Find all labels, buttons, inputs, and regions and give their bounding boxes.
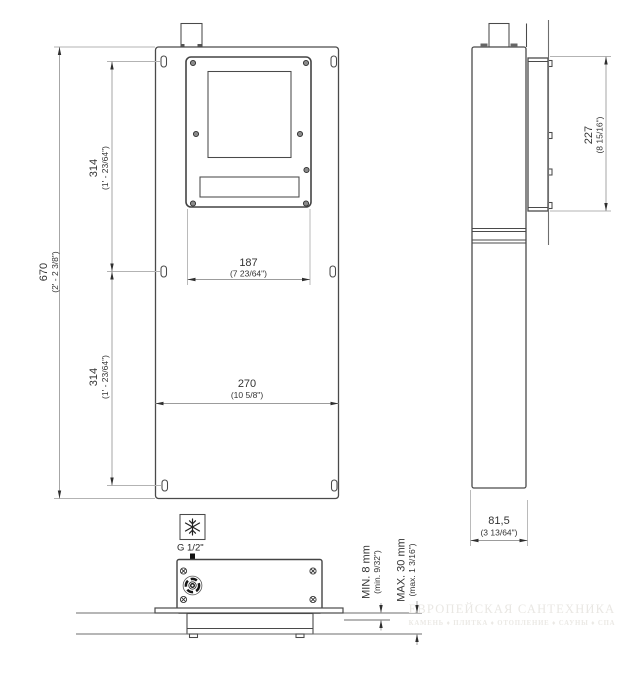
dim-overall-height-mm: 670	[38, 263, 50, 281]
supply-pipe-stub-front	[181, 24, 202, 48]
dim-lower-span-in: (1' - 23/64")	[100, 355, 110, 399]
watermark-title: ЕВРОПЕЙСКАЯ САНТЕХНИКА	[409, 602, 616, 616]
top-boss	[481, 44, 488, 48]
side-view: 227 (8 15/16") 81,5 (3 13/64")	[471, 20, 612, 546]
dim-frame-height-mm: 227	[583, 126, 595, 144]
housing-body-side	[472, 47, 526, 488]
dim-overall-height-in: (2' - 2 3/8")	[50, 251, 60, 293]
dim-depth-in: (3 13/64")	[480, 528, 517, 538]
dim-frame-height-in: (8 15/16")	[595, 116, 605, 153]
dim-wall-min-label: MIN. 8 mm	[361, 545, 373, 599]
thread-size-label: G 1/2"	[177, 543, 204, 554]
dim-overall-width-mm: 270	[238, 378, 256, 390]
technical-drawing: 670 (2' - 2 3/8") 314 (1' - 23/64") 314 …	[0, 0, 643, 674]
dim-upper-span-mm: 314	[88, 159, 100, 177]
dim-wall-max-in: (max. 1 3/16")	[407, 543, 417, 596]
supply-pipe-stub-side	[489, 24, 509, 48]
dim-overall-width-in: (10 5/8")	[231, 390, 263, 400]
function-frame	[186, 57, 311, 207]
dim-wall-min-in: (min. 9/32")	[372, 550, 382, 594]
dim-wall-max-label: MAX. 30 mm	[396, 538, 408, 602]
dim-cutout-width-in: (7 23/64")	[230, 269, 267, 279]
dim-cutout-width-mm: 187	[239, 257, 257, 269]
dim-depth-mm: 81,5	[488, 515, 509, 527]
watermark-subtitle: КАМЕНЬ ♦ ПЛИТКА ♦ ОТОПЛЕНИЕ ♦ САУНЫ ♦ СП…	[409, 620, 616, 627]
front-frame-side	[528, 58, 548, 211]
mounting-flange	[155, 608, 343, 613]
front-view: 670 (2' - 2 3/8") 314 (1' - 23/64") 314 …	[38, 24, 339, 499]
top-boss	[511, 44, 518, 48]
dim-upper-span-in: (1' - 23/64")	[100, 146, 110, 190]
recessed-section	[187, 614, 313, 635]
threaded-connection	[183, 576, 202, 595]
bottom-view: G 1/2"	[76, 515, 422, 646]
dim-lower-span-mm: 314	[88, 368, 100, 386]
watermark: ЕВРОПЕЙСКАЯ САНТЕХНИКА КАМЕНЬ ♦ ПЛИТКА ♦…	[409, 602, 616, 627]
